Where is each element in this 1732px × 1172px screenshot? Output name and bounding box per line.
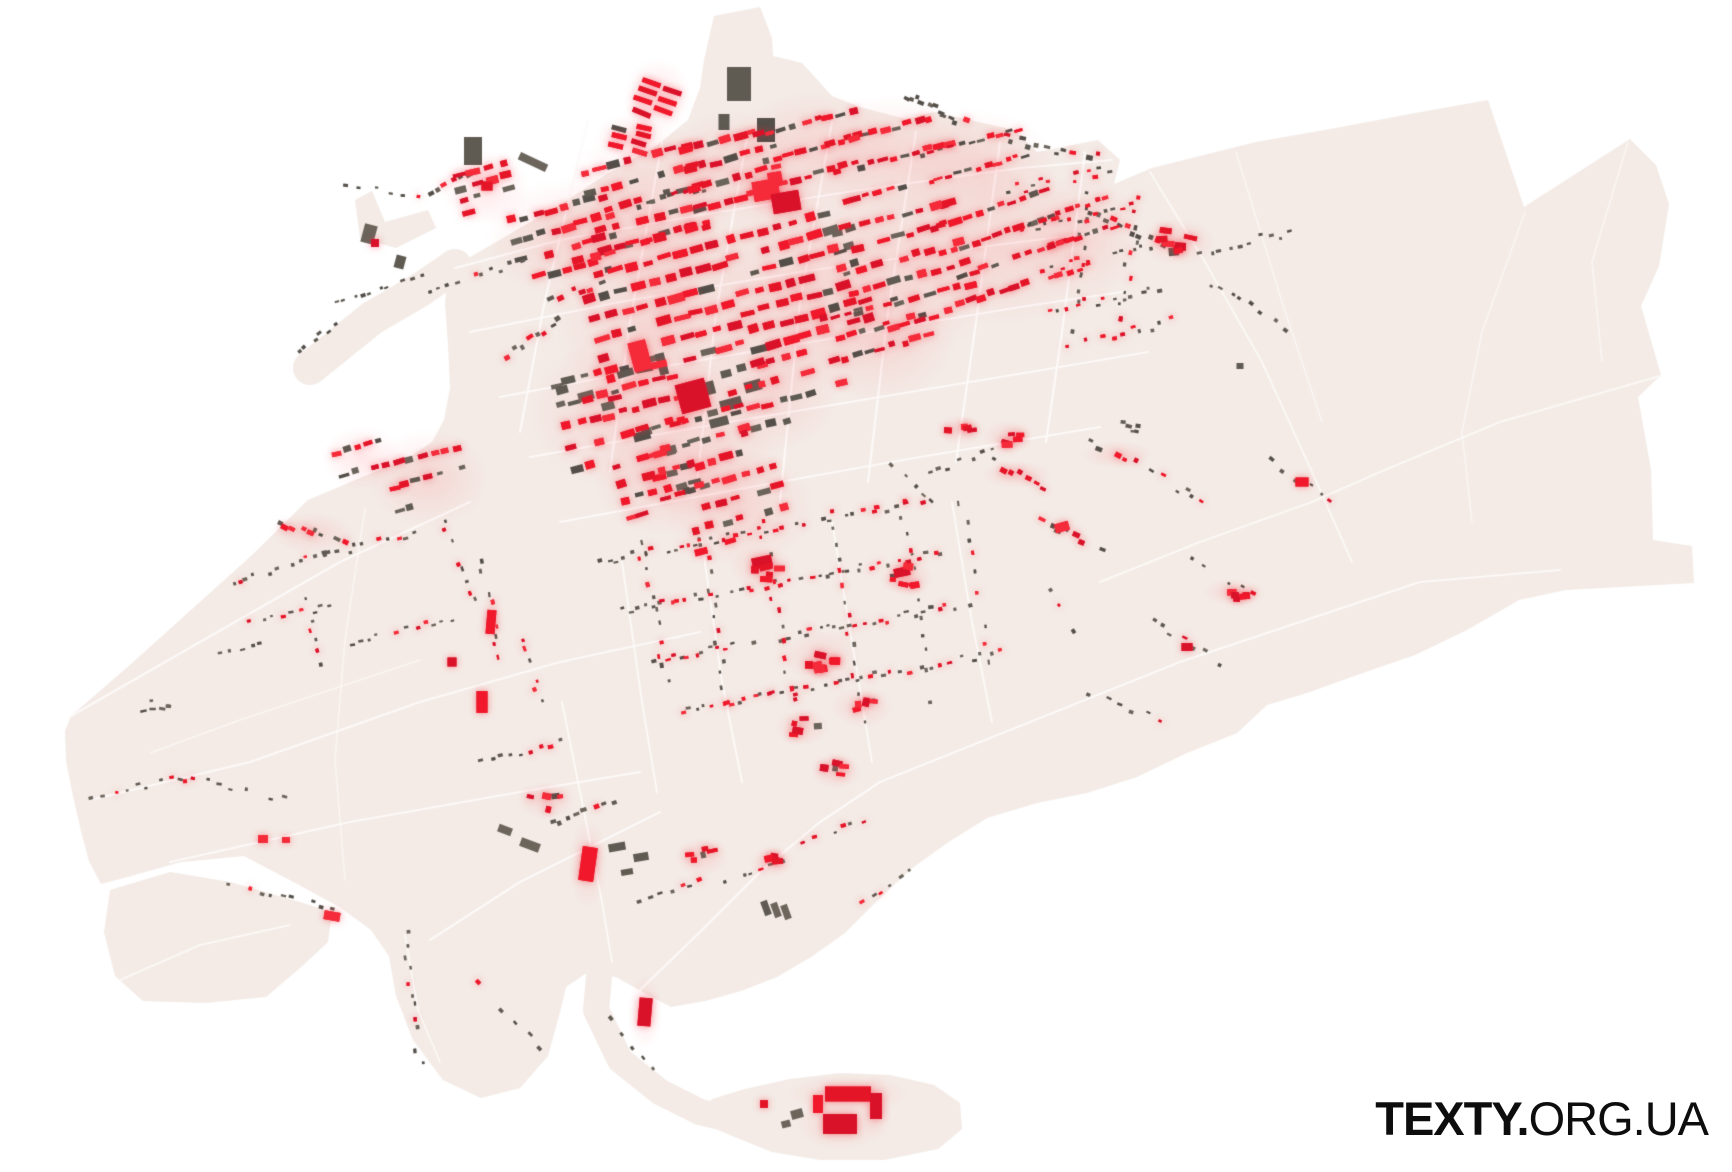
- city-damage-map-canvas: [0, 0, 1732, 1172]
- texty-logo-bold: TEXTY.: [1375, 1092, 1528, 1145]
- texty-logo: TEXTY.ORG.UA: [1375, 1091, 1708, 1146]
- texty-logo-regular: ORG.UA: [1529, 1092, 1708, 1145]
- map-screenshot: TEXTY.ORG.UA: [0, 0, 1732, 1172]
